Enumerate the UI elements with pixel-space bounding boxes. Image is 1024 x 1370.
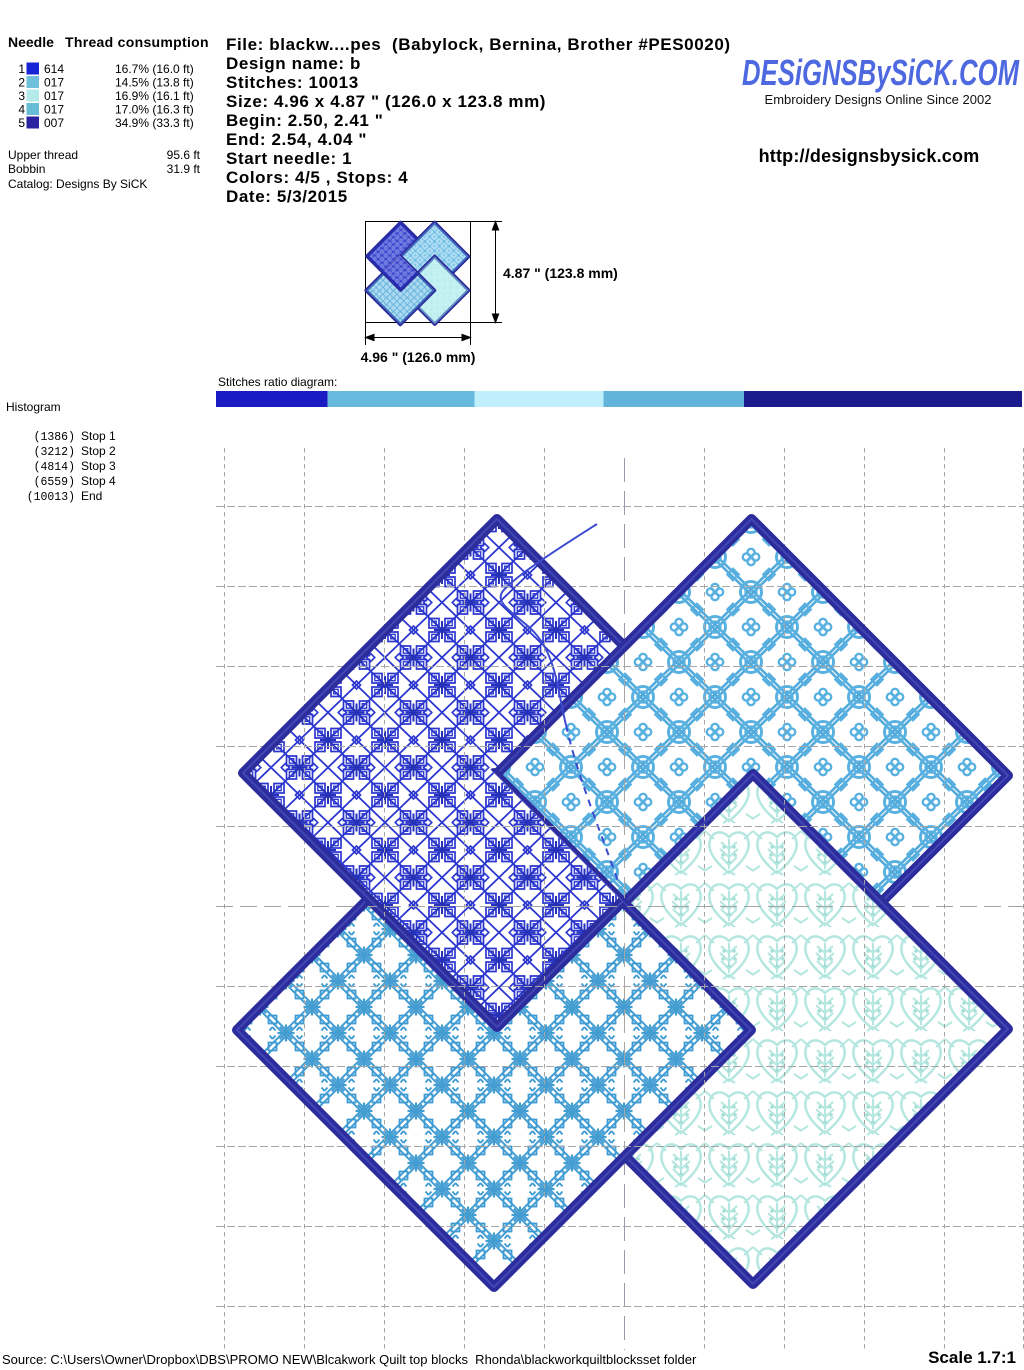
- svg-text:4: 4: [18, 103, 25, 117]
- svg-text:Begin: 2.50, 2.41 ": Begin: 2.50, 2.41 ": [226, 111, 383, 130]
- svg-text:Colors: 4/5 , Stops: 4: Colors: 4/5 , Stops: 4: [226, 168, 408, 187]
- svg-text:Bobbin: Bobbin: [8, 162, 45, 176]
- svg-text:(1386): (1386): [34, 431, 75, 444]
- svg-text:31.9 ft: 31.9 ft: [167, 162, 201, 176]
- svg-text:Source: C:\Users\Owner\Dropbox: Source: C:\Users\Owner\Dropbox\DBS\PROMO…: [2, 1352, 697, 1367]
- svg-text:16.7% (16.0 ft): 16.7% (16.0 ft): [115, 62, 194, 76]
- svg-text:34.9% (33.3 ft): 34.9% (33.3 ft): [115, 116, 194, 130]
- svg-text:Size: 4.96 x 4.87 " (126.0 x 1: Size: 4.96 x 4.87 " (126.0 x 123.8 mm): [226, 92, 546, 111]
- svg-text:Embroidery Designs Online Sinc: Embroidery Designs Online Since 2002: [765, 92, 992, 107]
- svg-text:Date: 5/3/2015: Date: 5/3/2015: [226, 187, 348, 206]
- svg-text:DESiGNSBySiCK.COM: DESiGNSBySiCK.COM: [742, 52, 1020, 93]
- svg-text:(4814): (4814): [34, 461, 75, 474]
- svg-text:http://designsbysick.com: http://designsbysick.com: [759, 146, 980, 166]
- svg-text:3: 3: [18, 89, 25, 103]
- svg-text:Design name: b: Design name: b: [226, 54, 361, 73]
- svg-text:14.5% (13.8 ft): 14.5% (13.8 ft): [115, 76, 194, 90]
- svg-text:017: 017: [44, 89, 64, 103]
- svg-text:(3212): (3212): [34, 446, 75, 459]
- svg-text:File: blackw....pes (Babylock: File: blackw....pes (Babylock, Bernina, …: [226, 35, 731, 54]
- svg-text:614: 614: [44, 62, 64, 76]
- svg-text:017: 017: [44, 76, 64, 90]
- svg-text:Stop 1: Stop 1: [81, 429, 116, 443]
- svg-text:Needle: Needle: [8, 34, 54, 50]
- svg-text:Stitches ratio diagram:: Stitches ratio diagram:: [218, 375, 337, 389]
- svg-text:2: 2: [18, 76, 25, 90]
- svg-text:017: 017: [44, 103, 64, 117]
- svg-text:Catalog: Designs By SiCK: Catalog: Designs By SiCK: [8, 177, 147, 191]
- svg-text:(6559): (6559): [34, 476, 75, 489]
- svg-text:Histogram: Histogram: [6, 400, 61, 414]
- svg-text:5: 5: [18, 116, 25, 130]
- svg-text:Thread consumption: Thread consumption: [65, 34, 209, 50]
- svg-text:4.96 " (126.0 mm): 4.96 " (126.0 mm): [361, 349, 476, 365]
- svg-text:Start needle: 1: Start needle: 1: [226, 149, 352, 168]
- svg-text:Stop 4: Stop 4: [81, 474, 116, 488]
- svg-text:End: End: [81, 489, 102, 503]
- svg-text:End: 2.54, 4.04 ": End: 2.54, 4.04 ": [226, 130, 367, 149]
- svg-text:1: 1: [18, 62, 25, 76]
- svg-text:Upper thread: Upper thread: [8, 148, 78, 162]
- svg-text:Stitches: 10013: Stitches: 10013: [226, 73, 359, 92]
- svg-text:Scale 1.7:1: Scale 1.7:1: [928, 1348, 1016, 1367]
- svg-text:17.0% (16.3 ft): 17.0% (16.3 ft): [115, 103, 194, 117]
- svg-text:16.9% (16.1 ft): 16.9% (16.1 ft): [115, 89, 194, 103]
- svg-text:95.6 ft: 95.6 ft: [167, 148, 201, 162]
- svg-text:007: 007: [44, 116, 64, 130]
- svg-text:Stop 2: Stop 2: [81, 444, 116, 458]
- svg-text:(10013): (10013): [27, 491, 75, 504]
- svg-text:4.87 " (123.8 mm): 4.87 " (123.8 mm): [503, 265, 618, 281]
- svg-text:Stop 3: Stop 3: [81, 459, 116, 473]
